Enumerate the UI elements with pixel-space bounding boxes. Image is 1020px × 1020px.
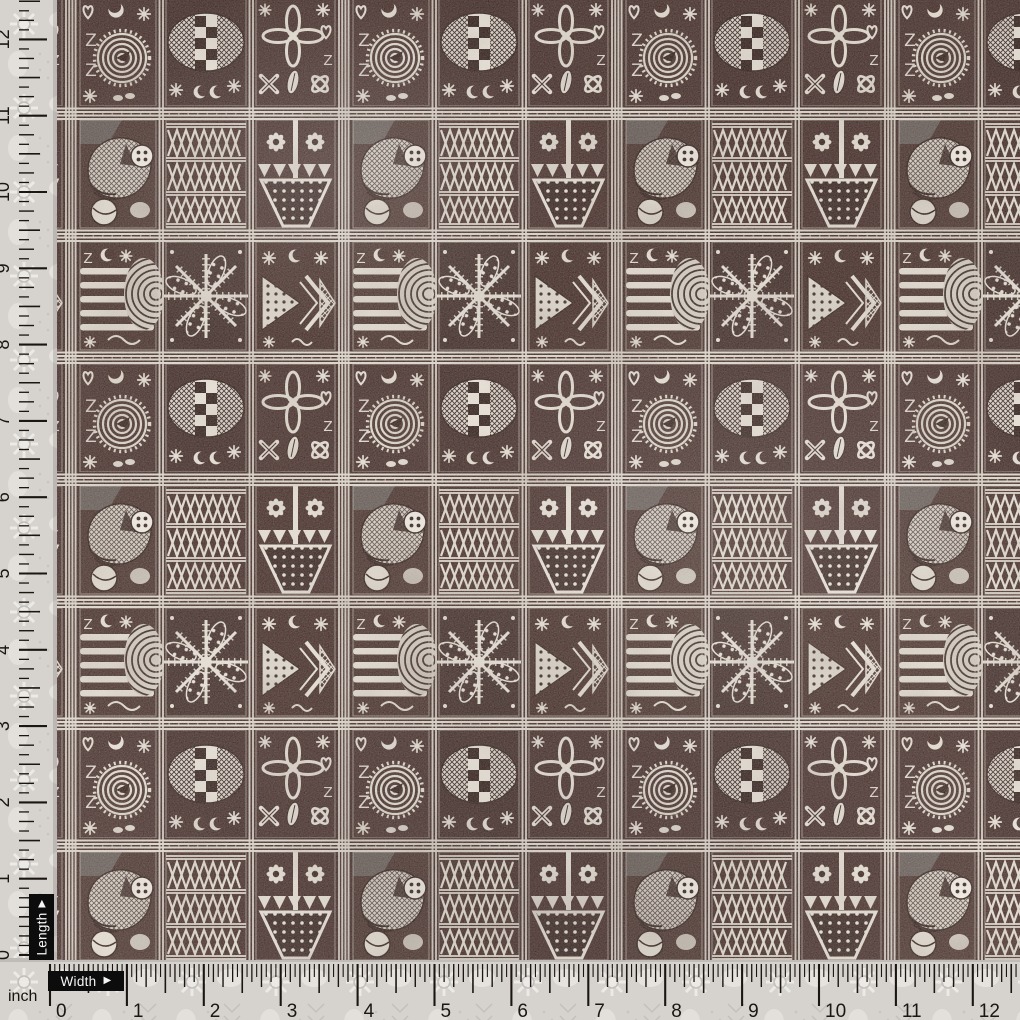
fabric-swatch-photo: Z — [0, 0, 1020, 1020]
width-label: Width ▶ — [48, 971, 124, 991]
length-label: Length ▶ — [29, 894, 54, 960]
fabric-grain — [57, 0, 1020, 960]
selvage-left — [0, 0, 57, 1020]
selvage-bottom — [0, 958, 1020, 1020]
length-label-text: Length — [34, 912, 49, 955]
fabric-print: Z — [57, 0, 1020, 960]
up-arrow-icon: ▶ — [37, 899, 47, 907]
right-arrow-icon: ▶ — [104, 976, 112, 986]
width-label-text: Width — [60, 974, 96, 989]
unit-label: inch — [8, 988, 37, 1006]
